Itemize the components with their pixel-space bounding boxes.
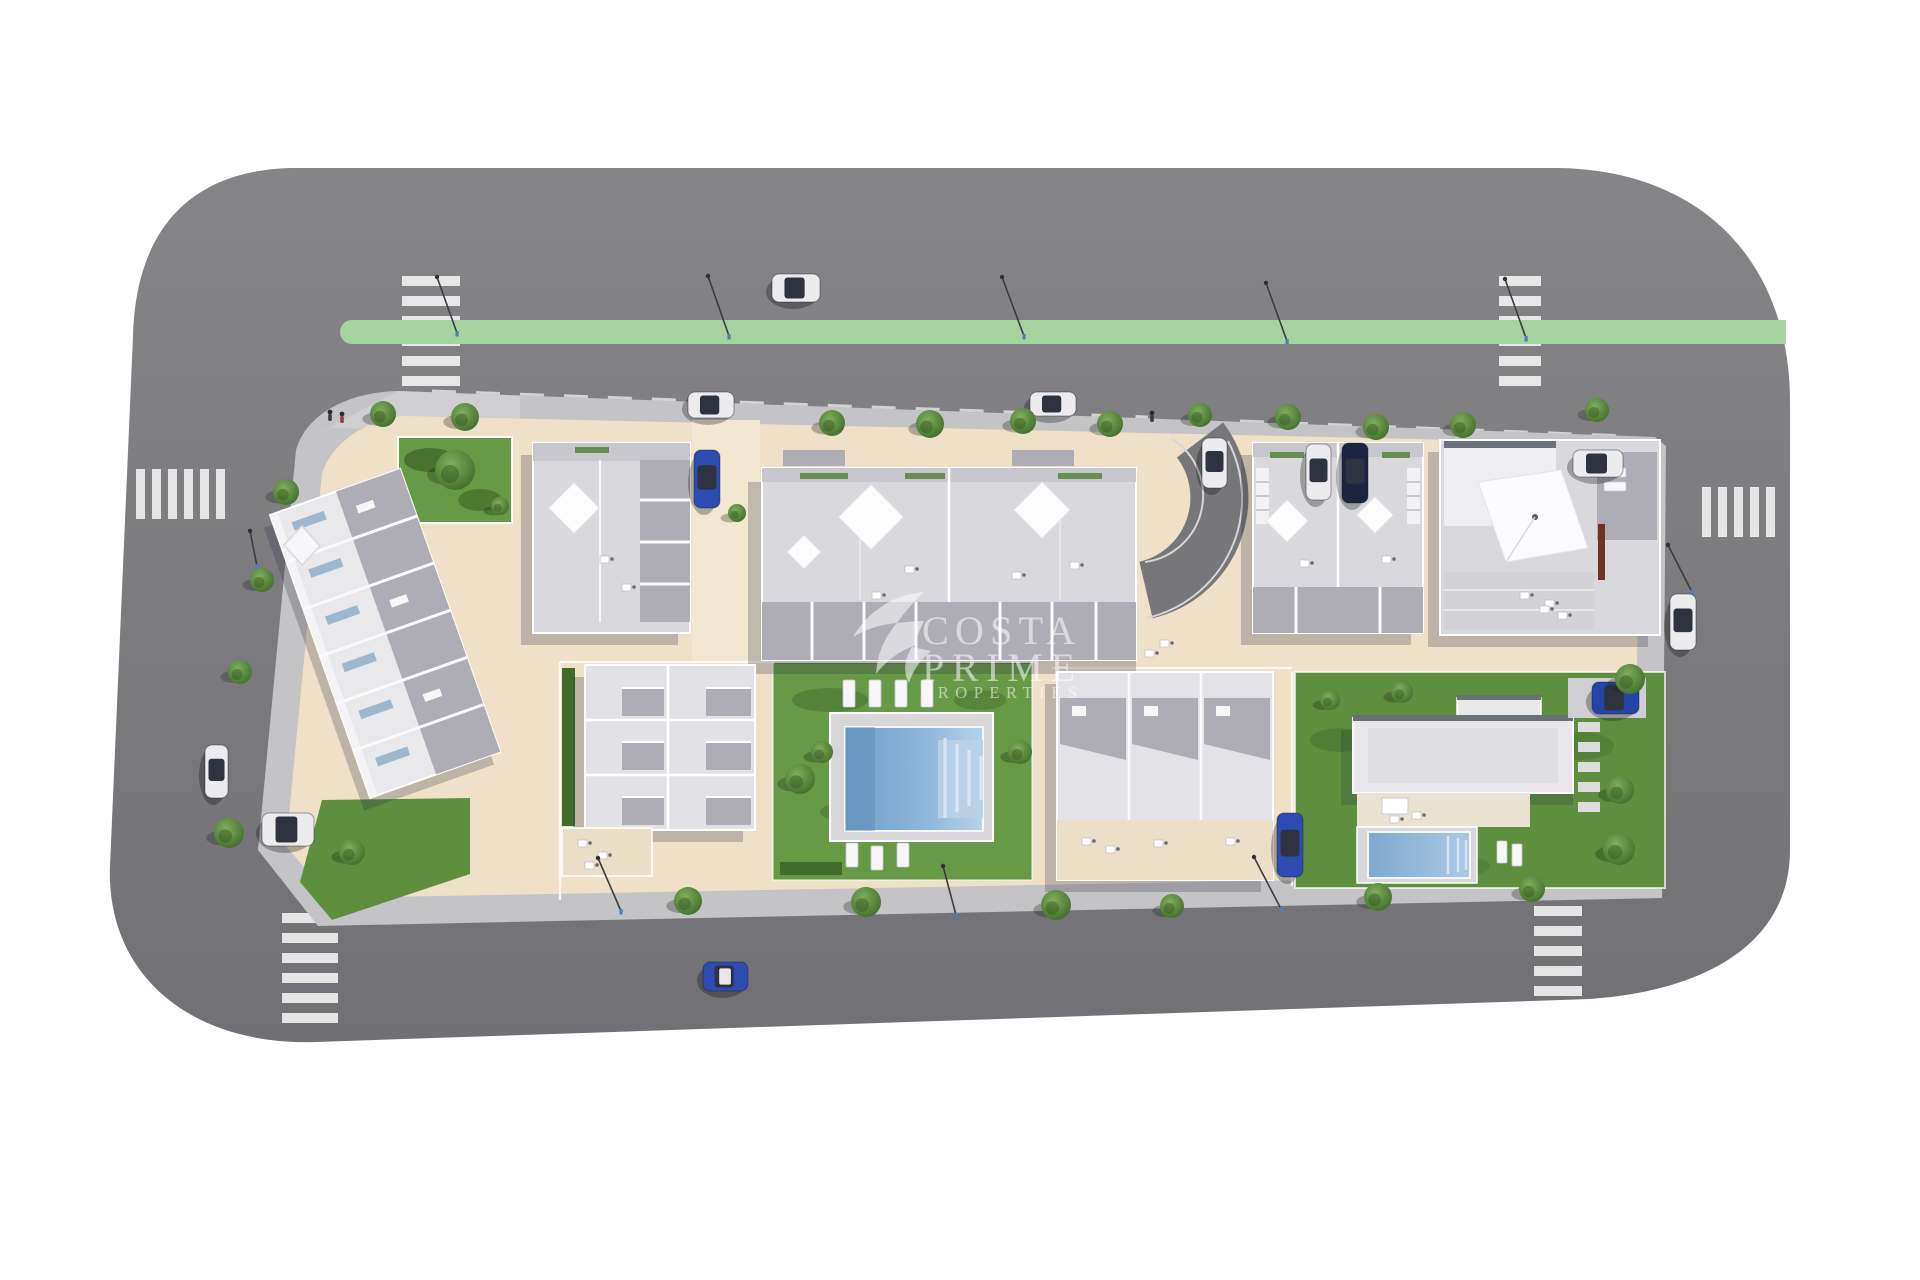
sun-lounger [895,680,907,707]
sun-lounger [897,843,909,867]
chimney [1598,524,1605,580]
aerial-site-plan-render: COSTA PRIME PROPERTIES [0,0,1920,1280]
sun-lounger [843,680,855,707]
pedestrian [328,410,333,421]
townhouse-block-b [1045,672,1273,892]
apartment-building-1 [521,443,690,645]
car-blue-bottom-road [697,962,748,998]
site-plan-canvas: COSTA PRIME PROPERTIES [0,0,1920,1280]
sun-lounger [846,843,858,867]
pedestrian [1150,411,1155,422]
green-lane-strip [340,320,1786,344]
sun-lounger [869,680,881,707]
apartment-building-4 [1241,443,1423,645]
sun-lounger [1604,482,1626,491]
community-pool [830,713,993,841]
villa-pool [1357,827,1477,883]
sun-lounger [871,846,883,870]
pedestrian [340,412,345,423]
car-white-parked-left [256,813,314,853]
car-white-b5 [1567,450,1623,484]
car-white-top-road [766,274,820,309]
dining-table [1382,798,1408,814]
sun-lounger [1512,844,1522,866]
car-white-parked-top-1 [682,392,734,425]
sun-lounger [1497,841,1507,863]
